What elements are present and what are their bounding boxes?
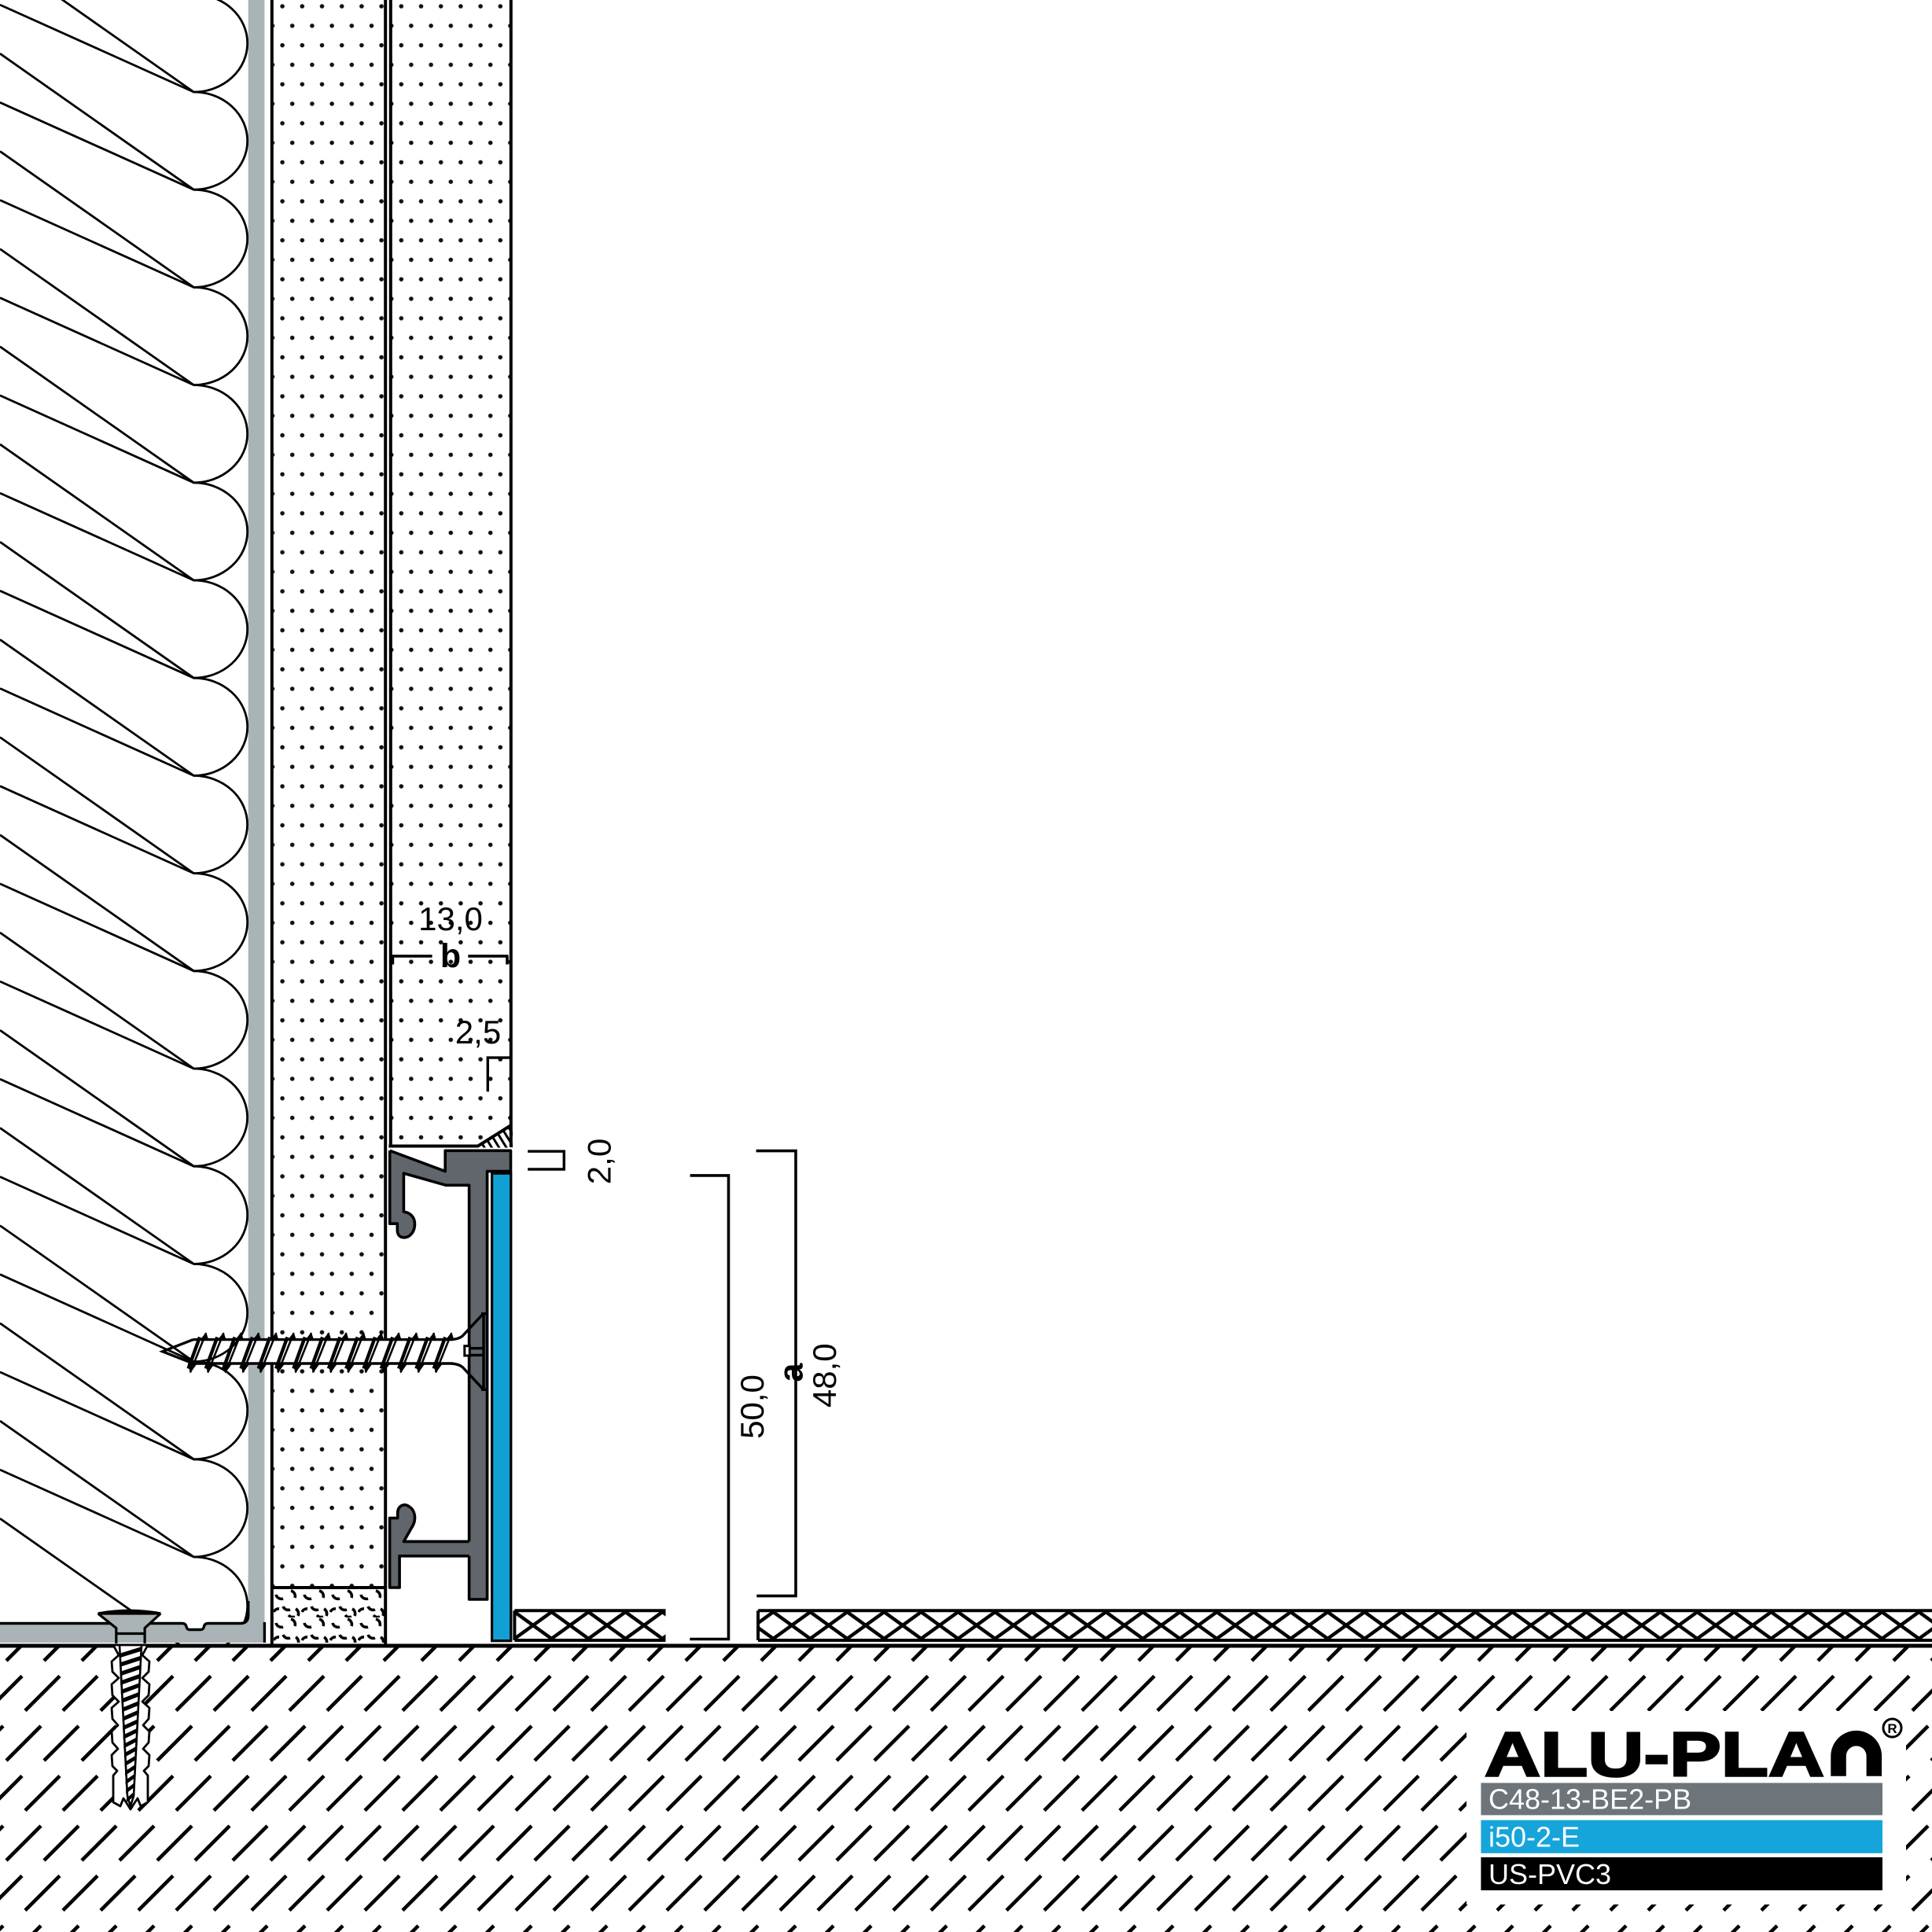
svg-text:b: b — [440, 937, 461, 975]
svg-text:a: a — [772, 1362, 810, 1382]
svg-text:2,0: 2,0 — [581, 1139, 618, 1184]
svg-text:48,0: 48,0 — [806, 1343, 843, 1408]
svg-text:C48-13-BE2-PB: C48-13-BE2-PB — [1489, 1783, 1691, 1815]
svg-text:R: R — [1887, 1721, 1897, 1736]
svg-text:13,0: 13,0 — [418, 900, 483, 937]
svg-text:US-PVC3: US-PVC3 — [1489, 1858, 1611, 1890]
svg-text:50,0: 50,0 — [734, 1374, 771, 1439]
svg-text:2,5: 2,5 — [455, 1014, 501, 1051]
svg-text:ALU-PLA: ALU-PLA — [1485, 1720, 1824, 1790]
svg-text:i50-2-E: i50-2-E — [1489, 1821, 1580, 1853]
